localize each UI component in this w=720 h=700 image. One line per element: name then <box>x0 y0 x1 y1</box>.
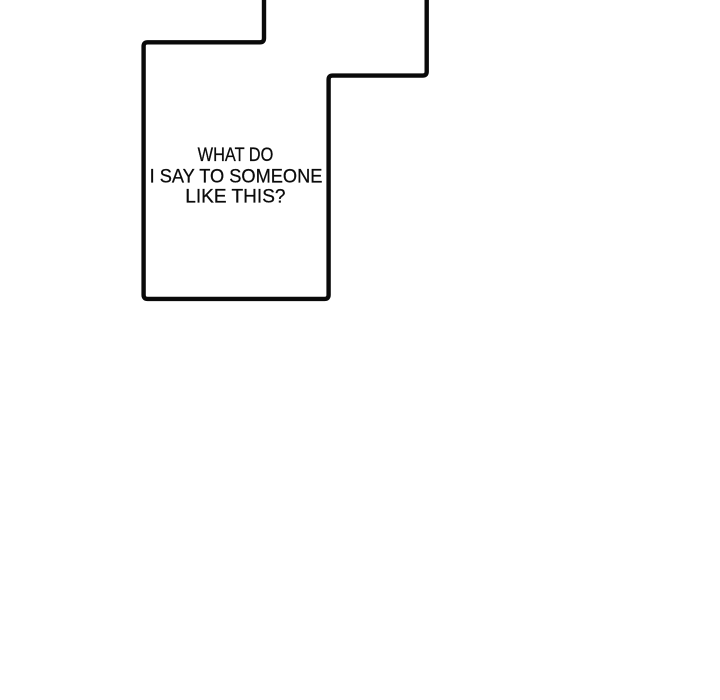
svg-text:LIKE THIS?: LIKE THIS? <box>185 186 285 207</box>
svg-text:I SAY TO SOMEONE: I SAY TO SOMEONE <box>150 166 323 187</box>
svg-text:WHAT DO: WHAT DO <box>198 145 274 166</box>
